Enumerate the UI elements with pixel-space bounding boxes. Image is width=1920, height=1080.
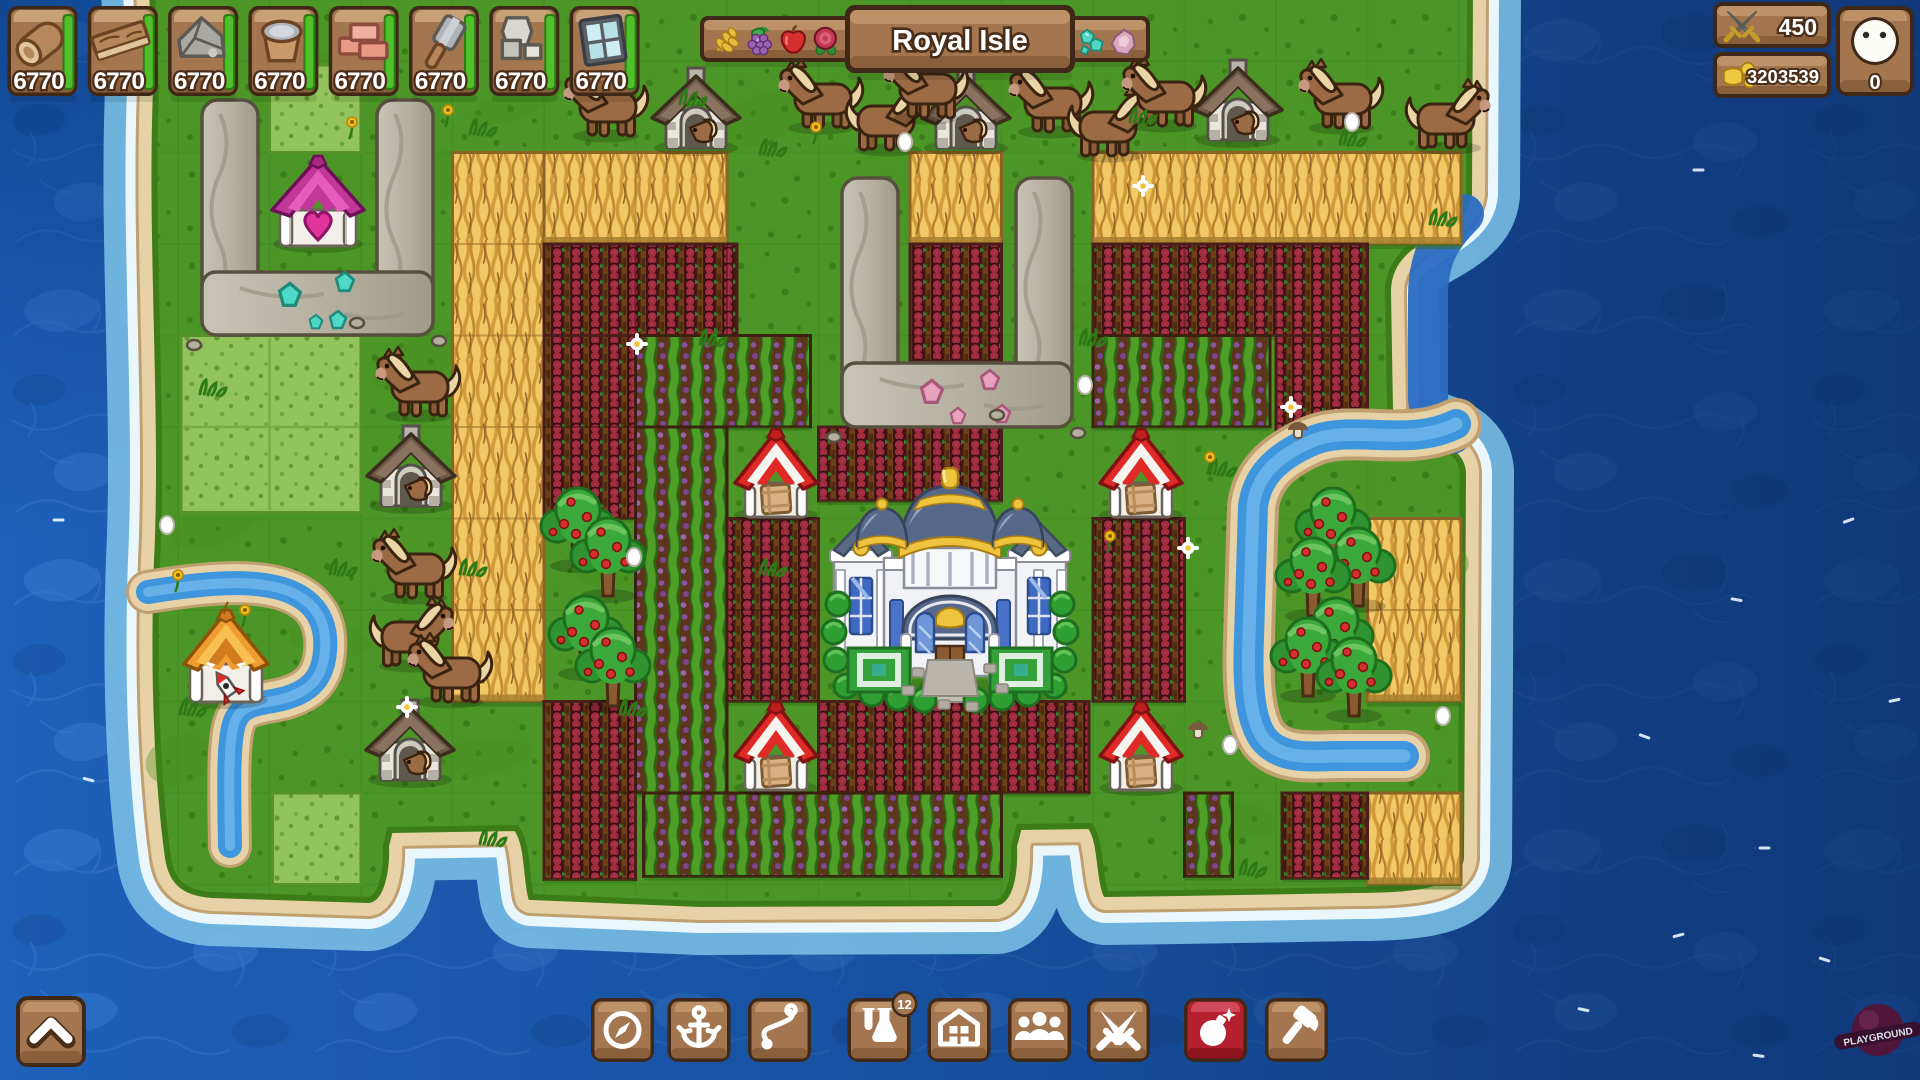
svg-text:6770: 6770 [334,68,385,95]
svg-text:6770: 6770 [495,68,546,95]
svg-text:6770: 6770 [254,68,305,95]
svg-text:6770: 6770 [94,68,145,95]
svg-text:3203539: 3203539 [1747,66,1819,87]
svg-text:450: 450 [1779,14,1817,40]
svg-text:0: 0 [1869,72,1880,94]
svg-text:Royal Isle: Royal Isle [892,25,1027,57]
svg-text:12: 12 [897,997,911,1012]
svg-text:6770: 6770 [13,68,64,95]
svg-text:6770: 6770 [575,68,626,95]
svg-text:6770: 6770 [174,68,225,95]
svg-text:6770: 6770 [415,68,466,95]
